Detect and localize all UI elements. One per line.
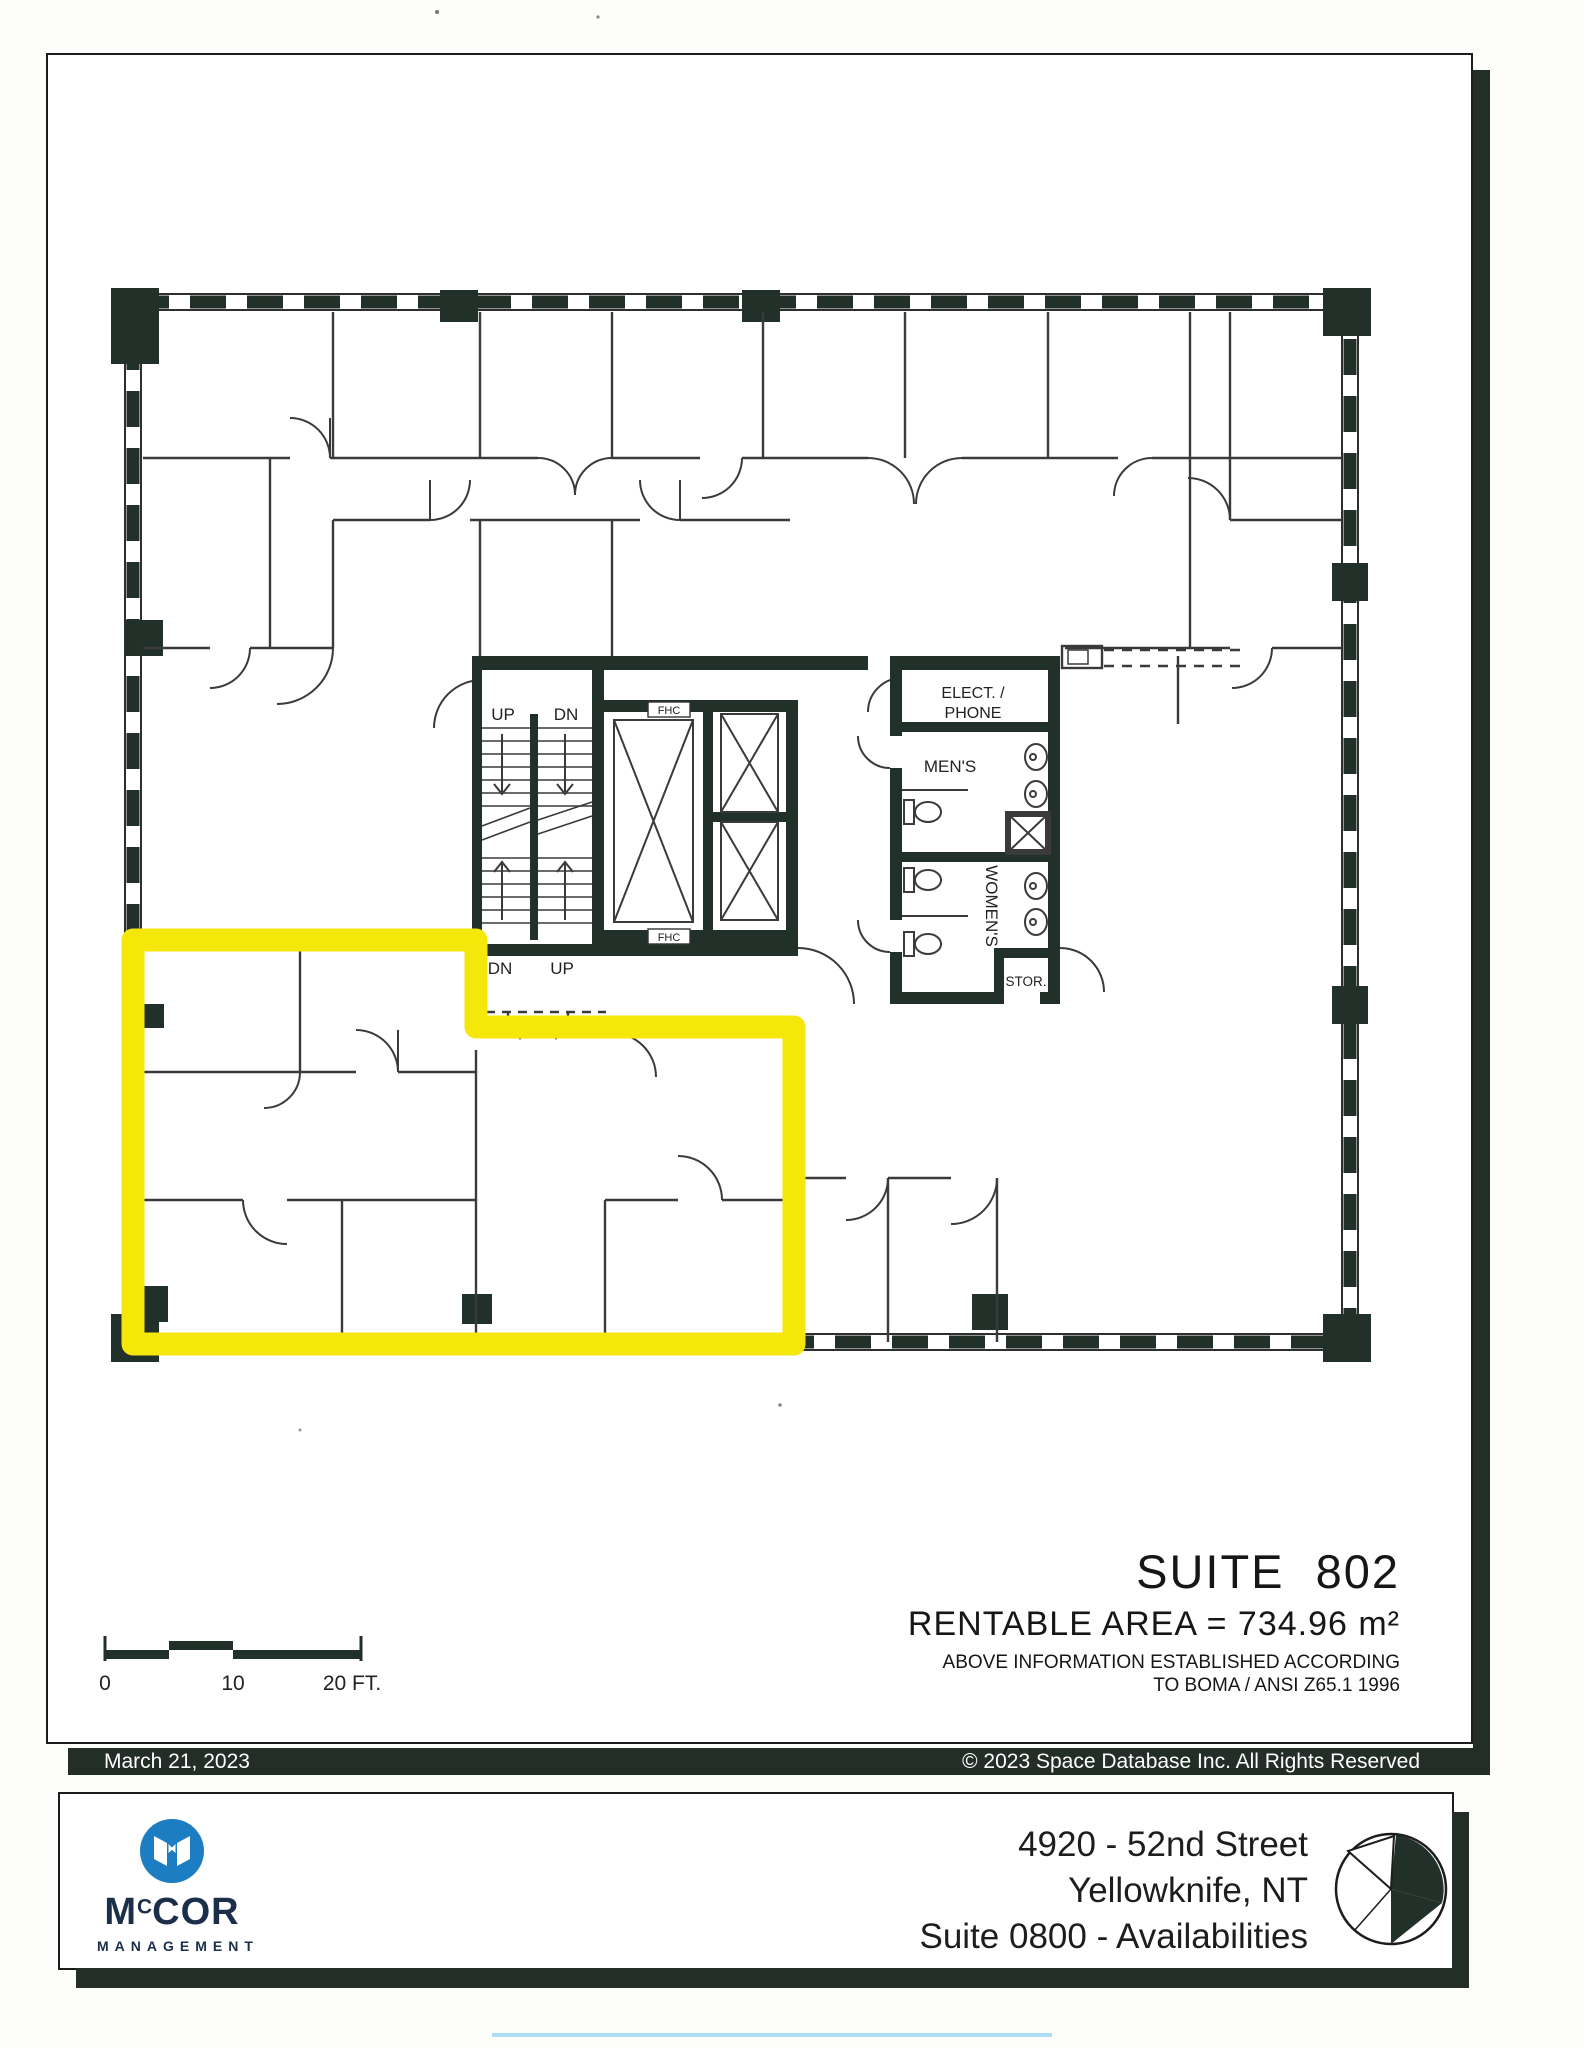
washrooms: ELECT. / PHONE MEN'S WOMEN'S STOR.: [890, 670, 1060, 1004]
scan-artifact-line: [492, 2033, 1052, 2037]
mccor-logo: MCCOR MANAGEMENT: [97, 1818, 247, 1954]
boma-note-line2: TO BOMA / ANSI Z65.1 1996: [908, 1674, 1400, 1697]
stair-label-dn-top: DN: [554, 705, 579, 724]
footer-shadow-bottom: [76, 1968, 1469, 1988]
boma-note: ABOVE INFORMATION ESTABLISHED ACCORDING …: [908, 1651, 1400, 1697]
mccor-wordmark: MCCOR: [97, 1891, 247, 1934]
fhc-label-top: FHC: [658, 705, 681, 717]
suite-highlight: [133, 940, 794, 1344]
scale-label-10: 10: [221, 1672, 244, 1695]
elevator-core: FHC FHC: [604, 700, 798, 944]
suite-802-outline: [133, 940, 794, 1344]
mccor-subtitle: MANAGEMENT: [97, 1938, 247, 1954]
address-street: 4920 - 52nd Street: [920, 1822, 1309, 1868]
stair-label-dn-bottom: DN: [488, 959, 513, 978]
stair-label-up-bottom: UP: [550, 959, 574, 978]
mccor-logo-icon: [139, 1818, 205, 1884]
sheet-bottom-strip: March 21, 2023 © 2023 Space Database Inc…: [68, 1748, 1490, 1775]
interior-partitions: [143, 312, 1342, 1342]
footer-shadow: [1452, 1812, 1469, 1988]
floor-plan: UP DN DN UP FHC: [0, 0, 1584, 2048]
boma-note-line1: ABOVE INFORMATION ESTABLISHED ACCORDING: [908, 1651, 1400, 1674]
copyright-notice: © 2023 Space Database Inc. All Rights Re…: [962, 1748, 1420, 1775]
north-arrow-icon: [1330, 1828, 1452, 1950]
scale-label-20ft: 20 FT.: [323, 1672, 381, 1695]
property-address: 4920 - 52nd Street Yellowknife, NT Suite…: [920, 1822, 1309, 1960]
scanned-floorplan-page: UP DN DN UP FHC: [0, 0, 1584, 2048]
plan-date: March 21, 2023: [104, 1748, 250, 1775]
scale-bar: 0 10 20 FT.: [99, 1636, 381, 1695]
elect-phone-label-line1: ELECT. /: [941, 685, 1005, 702]
door-swings: [210, 418, 1272, 1244]
mens-label: MEN'S: [924, 757, 976, 776]
address-suite-availability: Suite 0800 - Availabilities: [920, 1914, 1309, 1960]
stor-label: STOR.: [1005, 974, 1046, 989]
title-block: SUITE 802 RENTABLE AREA = 734.96 m² ABOV…: [908, 1544, 1400, 1697]
rentable-area: RENTABLE AREA = 734.96 m²: [908, 1605, 1400, 1644]
suite-title: SUITE 802: [908, 1544, 1400, 1599]
address-city: Yellowknife, NT: [920, 1868, 1309, 1914]
elect-phone-label-line2: PHONE: [945, 705, 1002, 722]
womens-label: WOMEN'S: [982, 865, 1001, 947]
scale-label-0: 0: [99, 1672, 111, 1695]
stair-label-up-top: UP: [491, 705, 515, 724]
fhc-label-bottom: FHC: [658, 932, 681, 944]
